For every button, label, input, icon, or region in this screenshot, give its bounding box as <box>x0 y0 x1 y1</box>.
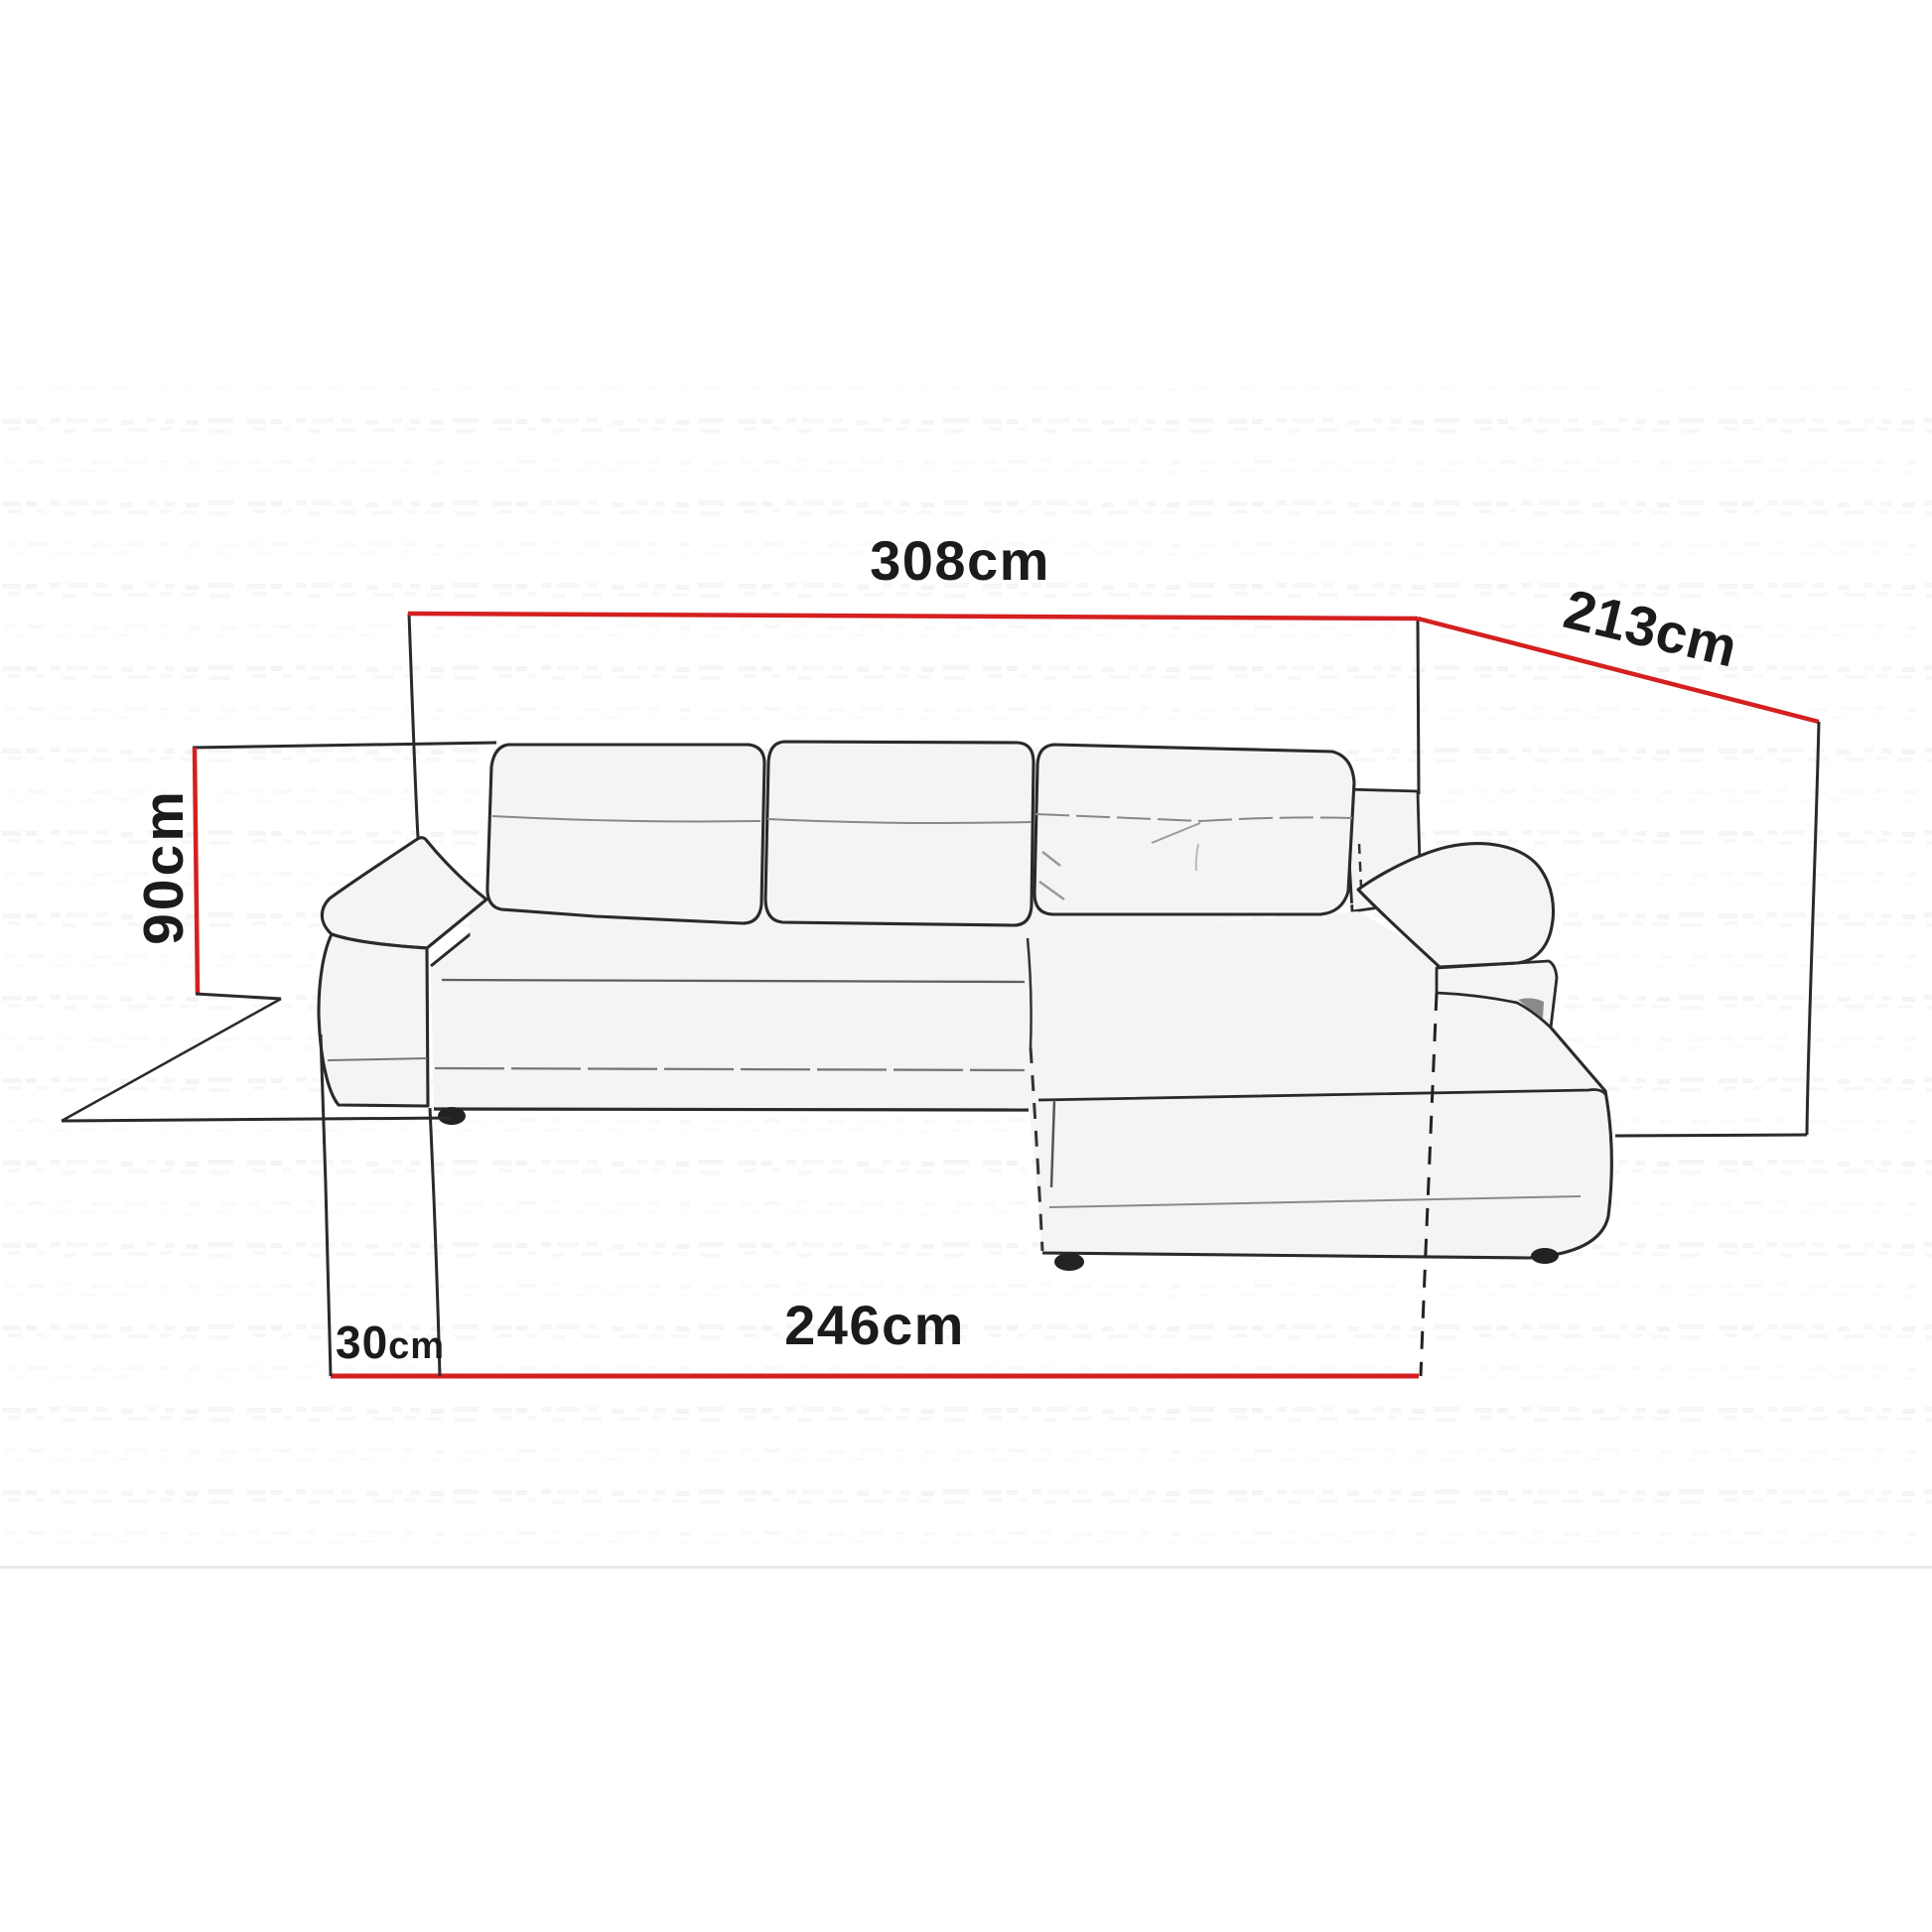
svg-text:246cm: 246cm <box>784 1294 965 1356</box>
svg-text:308cm: 308cm <box>870 529 1050 592</box>
svg-text:90cm: 90cm <box>132 788 196 945</box>
